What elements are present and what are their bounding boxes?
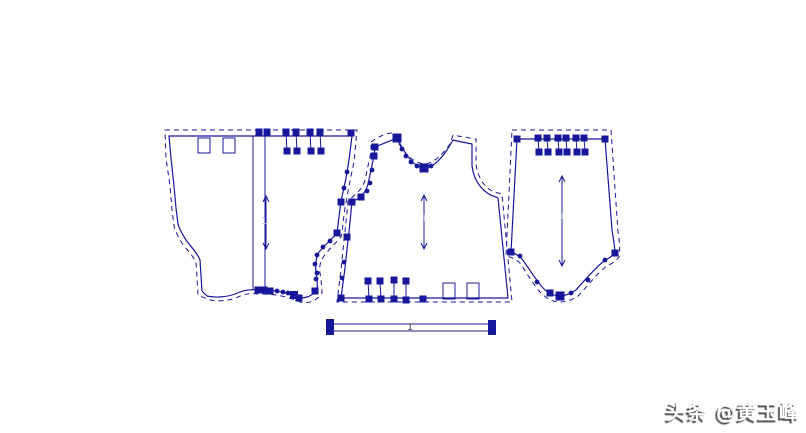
curve-point[interactable] bbox=[313, 262, 318, 267]
control-point[interactable] bbox=[256, 129, 263, 136]
control-point[interactable] bbox=[564, 149, 571, 156]
curve-point[interactable] bbox=[321, 245, 326, 250]
control-point[interactable] bbox=[338, 199, 345, 206]
control-point[interactable] bbox=[555, 135, 562, 142]
curve-point[interactable] bbox=[603, 258, 608, 263]
curve-point[interactable] bbox=[281, 290, 286, 295]
scale-bar-endpoint[interactable] bbox=[488, 320, 496, 328]
curve-point[interactable] bbox=[569, 291, 574, 296]
control-point[interactable] bbox=[556, 149, 563, 156]
control-point[interactable] bbox=[371, 153, 378, 160]
control-point[interactable] bbox=[264, 129, 271, 136]
control-point[interactable] bbox=[365, 278, 372, 285]
control-point[interactable] bbox=[612, 250, 619, 257]
watermark-text: 头条 @黄玉峰 bbox=[666, 396, 800, 425]
control-point[interactable] bbox=[358, 194, 365, 201]
control-point[interactable] bbox=[317, 129, 324, 136]
control-point[interactable] bbox=[261, 287, 268, 294]
pattern-piece-left[interactable]: 1 bbox=[165, 129, 357, 303]
control-point[interactable] bbox=[514, 136, 521, 143]
pattern-drawing: 1111 bbox=[0, 0, 806, 433]
pattern-piece-middle[interactable]: 1 bbox=[337, 133, 512, 304]
control-point[interactable] bbox=[420, 296, 427, 303]
scale-bar[interactable]: 1 bbox=[326, 319, 496, 335]
control-point[interactable] bbox=[344, 234, 351, 241]
scale-bar-endpoint[interactable] bbox=[326, 319, 334, 327]
curve-point[interactable] bbox=[315, 271, 320, 276]
curve-point[interactable] bbox=[518, 254, 523, 259]
control-point[interactable] bbox=[377, 278, 384, 285]
piece-number-label: 1 bbox=[421, 214, 427, 225]
control-point[interactable] bbox=[308, 148, 315, 155]
curve-point[interactable] bbox=[586, 278, 591, 283]
pleat-rect bbox=[467, 283, 479, 299]
control-point[interactable] bbox=[307, 129, 314, 136]
curve-point[interactable] bbox=[409, 160, 414, 165]
curve-point[interactable] bbox=[286, 291, 291, 296]
pattern-piece-right[interactable]: 1 bbox=[506, 130, 620, 302]
control-point[interactable] bbox=[366, 296, 373, 303]
piece-number-label: 1 bbox=[261, 216, 267, 227]
scale-bar-endpoint[interactable] bbox=[326, 327, 334, 335]
curve-point[interactable] bbox=[404, 154, 409, 159]
cad-canvas: 1111 头条 @黄玉峰 bbox=[0, 0, 806, 433]
control-point[interactable] bbox=[255, 287, 262, 294]
curve-point[interactable] bbox=[400, 147, 405, 152]
control-point[interactable] bbox=[267, 288, 274, 295]
control-point[interactable] bbox=[556, 292, 565, 301]
control-point[interactable] bbox=[293, 129, 300, 136]
control-point[interactable] bbox=[547, 290, 554, 297]
control-point[interactable] bbox=[334, 230, 341, 237]
curve-point[interactable] bbox=[368, 181, 373, 186]
control-point[interactable] bbox=[574, 149, 581, 156]
curve-point[interactable] bbox=[340, 276, 345, 281]
control-point[interactable] bbox=[563, 135, 570, 142]
control-point[interactable] bbox=[581, 135, 588, 142]
scale-bar-endpoint[interactable] bbox=[488, 327, 496, 335]
pleat-rect bbox=[223, 138, 235, 153]
control-point[interactable] bbox=[403, 297, 410, 304]
control-point[interactable] bbox=[318, 148, 325, 155]
curve-point[interactable] bbox=[365, 189, 370, 194]
control-point[interactable] bbox=[403, 278, 410, 285]
curve-point[interactable] bbox=[342, 260, 347, 265]
control-point[interactable] bbox=[582, 149, 589, 156]
control-point[interactable] bbox=[348, 130, 355, 137]
control-point[interactable] bbox=[535, 135, 542, 142]
control-point[interactable] bbox=[391, 296, 398, 303]
curve-point[interactable] bbox=[415, 164, 420, 169]
control-point[interactable] bbox=[544, 135, 551, 142]
curve-point[interactable] bbox=[429, 164, 434, 169]
control-point[interactable] bbox=[420, 164, 429, 173]
curve-point[interactable] bbox=[535, 280, 540, 285]
control-point[interactable] bbox=[391, 277, 398, 284]
control-point[interactable] bbox=[602, 136, 609, 143]
pleat-rect bbox=[443, 283, 455, 299]
control-point[interactable] bbox=[312, 288, 319, 295]
control-point[interactable] bbox=[545, 149, 552, 156]
control-point[interactable] bbox=[338, 295, 345, 302]
piece-number-label: 1 bbox=[559, 212, 565, 223]
control-point[interactable] bbox=[573, 135, 580, 142]
control-point[interactable] bbox=[349, 199, 356, 206]
curve-point[interactable] bbox=[328, 239, 333, 244]
control-point[interactable] bbox=[283, 129, 290, 136]
control-point[interactable] bbox=[284, 148, 291, 155]
control-point[interactable] bbox=[536, 149, 543, 156]
curve-point[interactable] bbox=[370, 168, 375, 173]
curve-point[interactable] bbox=[345, 170, 350, 175]
control-point[interactable] bbox=[372, 144, 379, 151]
pleat-rect bbox=[198, 138, 210, 153]
control-point[interactable] bbox=[294, 148, 301, 155]
curve-point[interactable] bbox=[315, 253, 320, 258]
scale-bar-label: 1 bbox=[407, 323, 413, 333]
curve-point[interactable] bbox=[342, 186, 347, 191]
control-point[interactable] bbox=[296, 295, 303, 302]
control-point[interactable] bbox=[393, 134, 402, 143]
curve-point[interactable] bbox=[314, 277, 319, 282]
control-point[interactable] bbox=[378, 296, 385, 303]
curve-point[interactable] bbox=[275, 289, 280, 294]
control-point[interactable] bbox=[508, 249, 515, 256]
